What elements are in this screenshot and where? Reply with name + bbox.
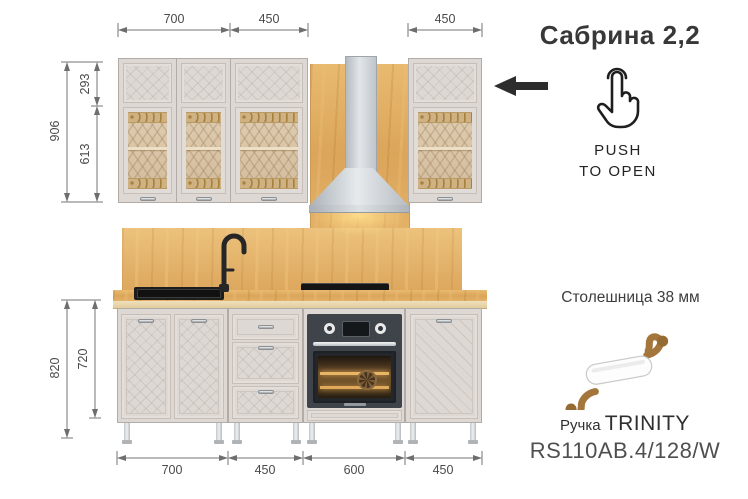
drawer-handle	[258, 325, 274, 329]
shelf-line	[418, 147, 472, 150]
ornament-band	[128, 112, 167, 123]
base-door	[410, 314, 478, 419]
ornament-band	[240, 112, 298, 123]
drawer-handle	[258, 390, 274, 394]
glass-pane	[418, 112, 472, 189]
handle-model: RS110AB.4/128/W	[505, 438, 745, 464]
cabinet-leg	[395, 423, 401, 440]
cabinet-foot	[307, 440, 317, 444]
hand-tap-icon	[585, 64, 649, 140]
cabinet-leg	[309, 423, 315, 440]
dim-top-450b: 450	[423, 12, 467, 26]
left-arrow-icon	[494, 74, 548, 98]
oven-bottom-drawer	[307, 410, 402, 421]
dim-top-700: 700	[152, 12, 196, 26]
oven-rack	[320, 386, 389, 389]
glass-door	[235, 107, 303, 194]
door-pattern	[179, 319, 219, 414]
drawer	[232, 342, 299, 384]
shelf-line	[128, 147, 167, 150]
glass-door	[413, 107, 477, 194]
push-to-open-label-line1: PUSH	[558, 142, 678, 159]
cabinet-foot	[291, 440, 301, 444]
dim-bottom-450b: 450	[421, 463, 465, 477]
cabinet-leg	[293, 423, 299, 440]
dim-293: 293	[78, 62, 92, 106]
shelf-line	[186, 147, 221, 150]
oven-display	[342, 321, 370, 337]
drawer-handle	[258, 346, 274, 350]
dim-613: 613	[78, 132, 92, 176]
door-handle	[261, 197, 277, 201]
base-door	[174, 314, 224, 419]
dim-top-450: 450	[247, 12, 291, 26]
cabinet-foot	[468, 440, 478, 444]
cabinet-leg	[410, 423, 416, 440]
dim-720: 720	[76, 337, 90, 381]
oven-window	[313, 351, 396, 403]
dim-820: 820	[48, 346, 62, 390]
door-top-panel	[123, 63, 172, 103]
door-pattern	[126, 319, 166, 414]
cabinet-foot	[232, 440, 242, 444]
ornament-band	[240, 178, 298, 189]
glass-pane	[128, 112, 167, 189]
faucet-icon	[210, 230, 265, 292]
dim-bottom-450: 450	[243, 463, 287, 477]
oven-interior	[318, 356, 391, 398]
countertop-note: Столешница 38 мм	[523, 289, 738, 307]
oven-brand-mark	[344, 403, 366, 406]
product-title: Сабрина 2,2	[510, 20, 730, 51]
glass-door	[123, 107, 172, 194]
dim-bottom-700: 700	[150, 463, 194, 477]
ornament-band	[186, 178, 221, 189]
glass-pane	[240, 112, 298, 189]
base-cabinet-right	[405, 308, 482, 423]
dim-906: 906	[48, 109, 62, 153]
wall-cabinet-door	[408, 58, 482, 203]
cabinet-leg	[124, 423, 130, 440]
oven-knob	[375, 323, 386, 334]
cabinet-leg	[234, 423, 240, 440]
oven-housing	[303, 308, 405, 423]
drawer	[232, 314, 299, 340]
cabinet-foot	[214, 440, 224, 444]
oven-handle	[313, 342, 396, 346]
drawer-pattern	[237, 391, 294, 414]
base-door	[121, 314, 171, 419]
drawer-pattern	[311, 413, 398, 418]
kitchen-spec-sheet: 700 450 450 906 293 613 820 720 700 450 …	[0, 0, 748, 499]
hood-front-band	[309, 205, 409, 213]
backsplash	[122, 228, 462, 290]
glass-door	[181, 107, 226, 194]
door-handle	[138, 319, 154, 323]
cabinet-foot	[408, 440, 418, 444]
dim-bottom-600: 600	[332, 463, 376, 477]
door-top-panel	[235, 63, 303, 103]
oven-fan	[357, 370, 377, 390]
push-to-open-label-line2: TO OPEN	[558, 163, 678, 180]
wall-cabinet-door	[230, 58, 308, 203]
drawer-unit	[228, 308, 303, 423]
ornament-band	[418, 178, 472, 189]
door-handle	[436, 319, 452, 323]
door-pattern	[415, 319, 473, 414]
ornament-band	[186, 112, 221, 123]
wall-cabinet-door	[118, 58, 177, 203]
ornament-band	[128, 178, 167, 189]
handle-label: Ручка TRINITY	[515, 412, 735, 436]
door-top-panel	[413, 63, 477, 103]
door-handle	[191, 319, 207, 323]
sink-basin	[137, 289, 221, 298]
handle-name: TRINITY	[605, 412, 690, 435]
door-handle	[196, 197, 212, 201]
oven	[307, 314, 402, 408]
drawer	[232, 386, 299, 419]
drawer-pattern	[237, 347, 294, 379]
door-handle	[140, 197, 156, 201]
door-top-panel	[181, 63, 226, 103]
glass-pane	[186, 112, 221, 189]
cabinet-leg	[216, 423, 222, 440]
cabinet-foot	[393, 440, 403, 444]
ornament-band	[418, 112, 472, 123]
shelf-line	[240, 147, 298, 150]
cabinet-leg	[470, 423, 476, 440]
cabinet-foot	[122, 440, 132, 444]
wall-cabinet-door	[176, 58, 231, 203]
sink-base-cabinet	[117, 308, 228, 423]
handle-label-prefix: Ручка	[560, 417, 601, 434]
handle-photo	[548, 330, 693, 410]
oven-knob	[324, 323, 335, 334]
door-handle	[437, 197, 453, 201]
oven-rack	[320, 372, 389, 375]
hood-chimney	[345, 56, 377, 172]
